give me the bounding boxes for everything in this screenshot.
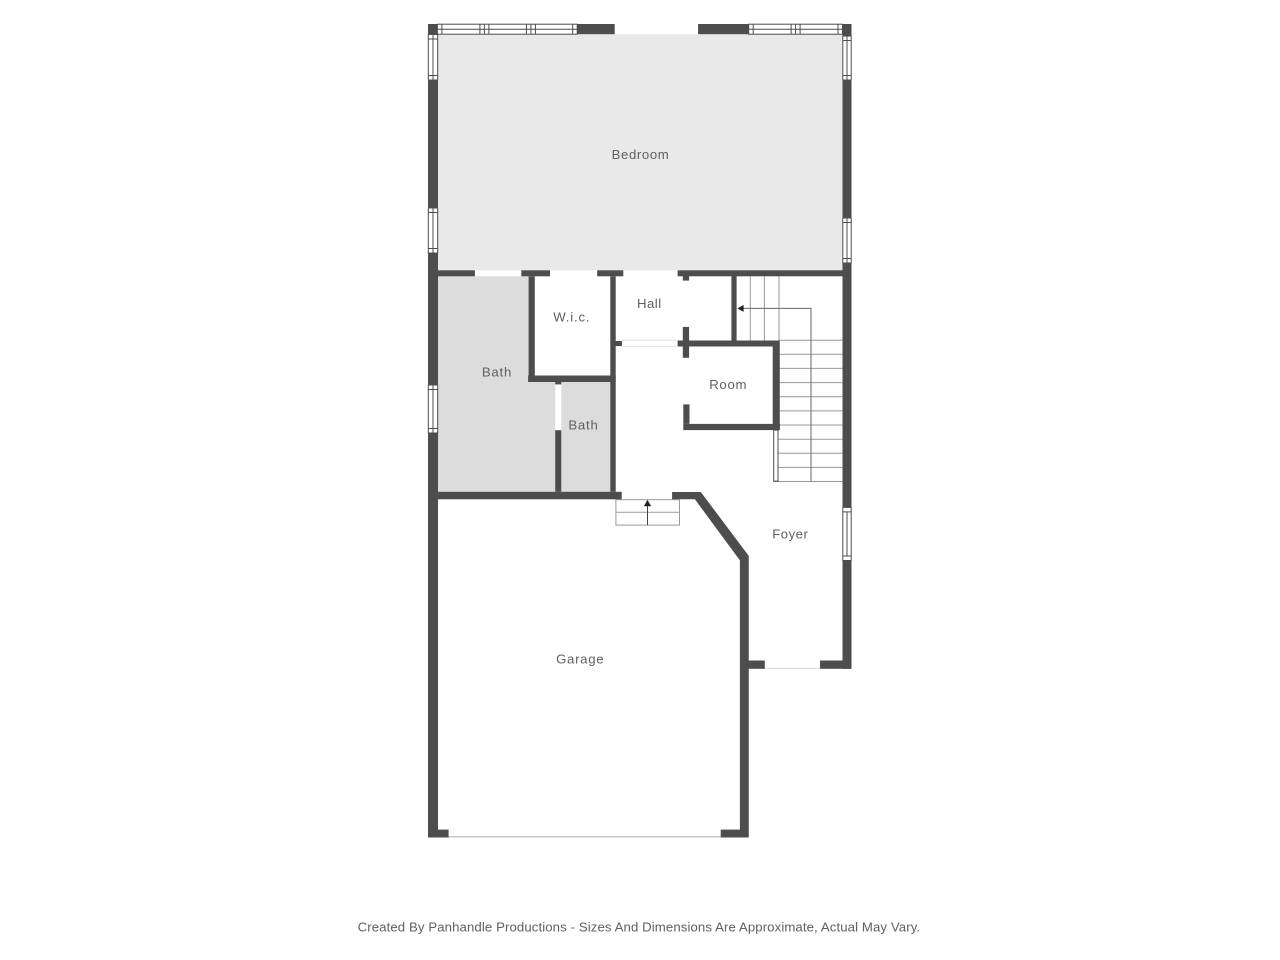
svg-text:Bedroom: Bedroom [612,147,670,162]
svg-text:Room: Room [709,377,747,392]
svg-text:Hall: Hall [637,296,662,311]
svg-text:Garage: Garage [556,652,604,667]
svg-text:W.i.c.: W.i.c. [553,310,590,325]
svg-text:Foyer: Foyer [772,527,808,542]
svg-text:Created By Panhandle Productio: Created By Panhandle Productions - Sizes… [358,919,921,934]
svg-text:Bath: Bath [568,418,598,433]
svg-text:Bath: Bath [482,365,512,380]
